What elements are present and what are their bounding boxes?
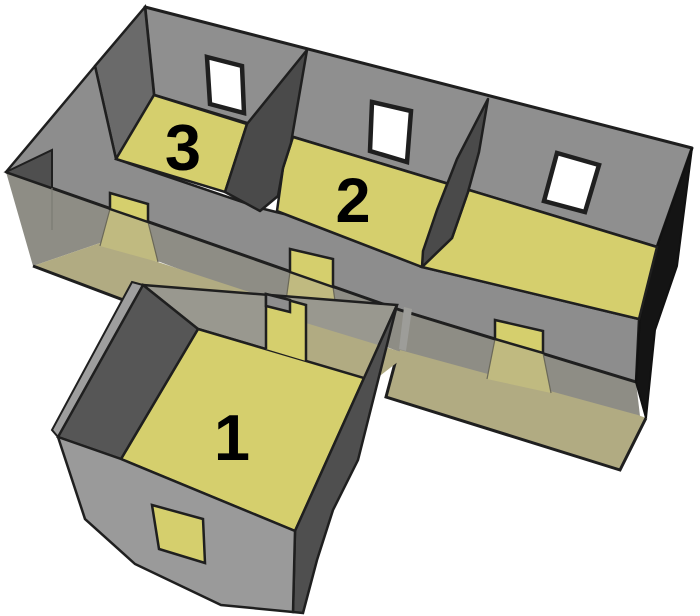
svg-text:1: 1 [214,401,250,474]
svg-text:2: 2 [335,166,370,236]
svg-text:3: 3 [165,111,201,184]
